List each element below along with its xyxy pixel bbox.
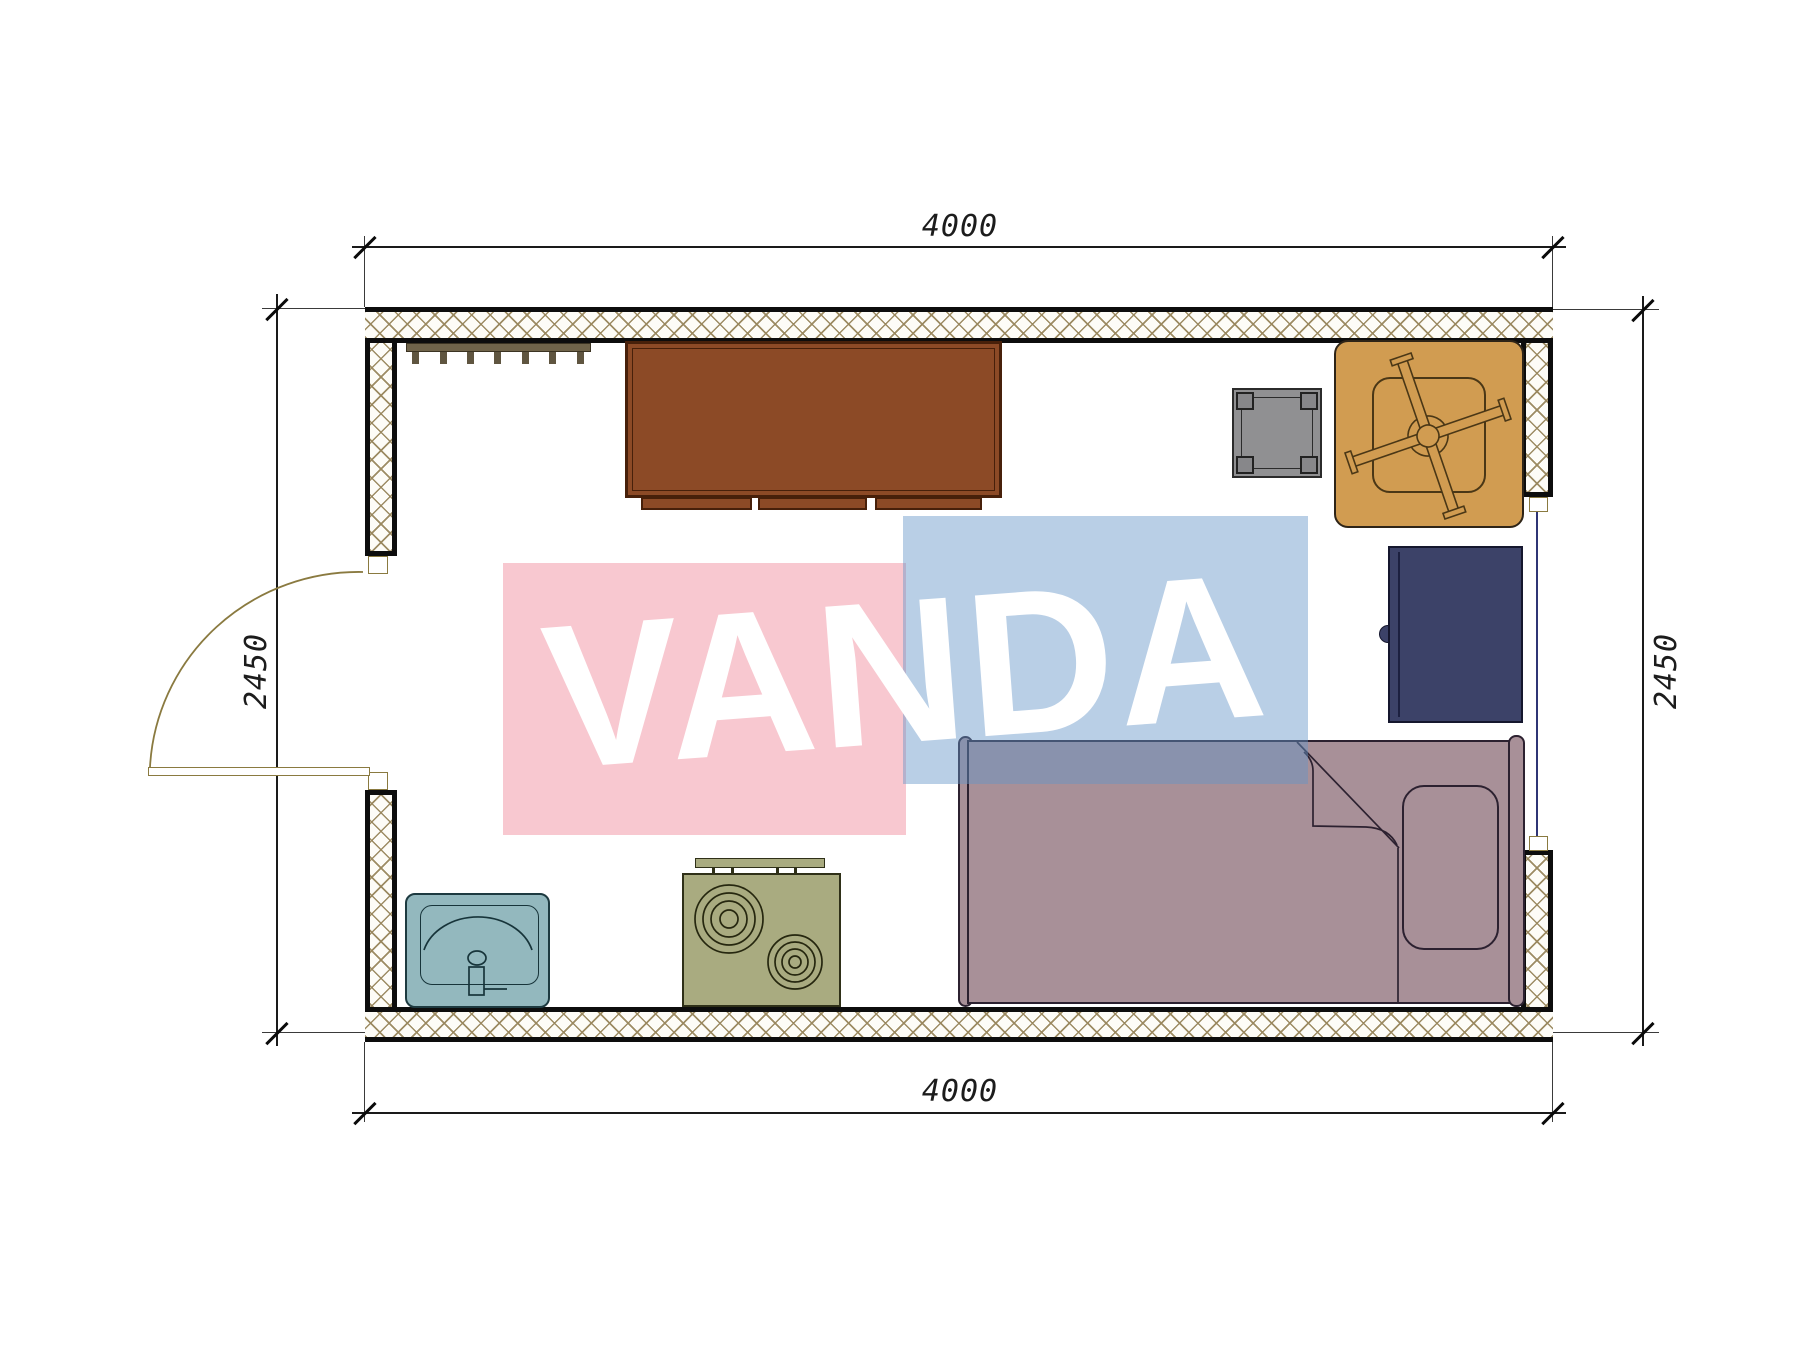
desk-drawer: [758, 497, 867, 510]
bed-headboard: [1508, 735, 1525, 1007]
coat-rack: [406, 343, 591, 352]
table-leg: [1236, 456, 1254, 474]
dim-label-top: 4000: [880, 209, 1040, 243]
coat-hook: [440, 352, 447, 364]
coat-hook: [549, 352, 556, 364]
coat-hook: [467, 352, 474, 364]
wall-left-lower: [365, 790, 397, 1042]
office-chair: [1334, 340, 1524, 528]
wardrobe-door-line: [1398, 552, 1400, 717]
wall-left-upper: [365, 307, 397, 556]
dim-label-right: 2450: [1649, 591, 1683, 751]
chair-seat-outline: [1372, 377, 1486, 493]
desk-drawer: [875, 497, 982, 510]
sink-basin-outline: [420, 905, 539, 985]
side-table: [1232, 388, 1322, 478]
table-leg: [1300, 392, 1318, 410]
desk-top-outline: [632, 348, 995, 491]
dim-line-left: [276, 294, 278, 1046]
sink: [405, 893, 550, 1008]
coat-hook: [494, 352, 501, 364]
table-leg: [1236, 392, 1254, 410]
dim-line-bottom: [352, 1112, 1566, 1114]
dim-line-right: [1642, 296, 1644, 1046]
wall-bottom: [365, 1007, 1553, 1042]
stove: [682, 873, 841, 1007]
dim-label-bottom: 4000: [880, 1074, 1040, 1108]
table-leg: [1300, 456, 1318, 474]
dim-line-top: [352, 246, 1566, 248]
door-leaf: [148, 767, 370, 776]
floor-plan: 4000 4000 2450 2450: [0, 0, 1800, 1350]
coat-hook: [577, 352, 584, 364]
window-jamb-top: [1529, 497, 1548, 512]
window-jamb-bottom: [1529, 836, 1548, 851]
coat-hook: [412, 352, 419, 364]
coat-hook: [522, 352, 529, 364]
desk-drawer: [641, 497, 752, 510]
window-glazing: [1536, 512, 1538, 836]
bed-pillow: [1402, 785, 1499, 950]
wall-top: [365, 307, 1553, 343]
wardrobe: [1388, 546, 1523, 723]
stove-backsplash: [695, 858, 825, 868]
dim-label-left: 2450: [239, 591, 273, 751]
door-jamb-bottom: [368, 772, 388, 790]
door-jamb-top: [368, 556, 388, 574]
desk: [625, 341, 1002, 498]
